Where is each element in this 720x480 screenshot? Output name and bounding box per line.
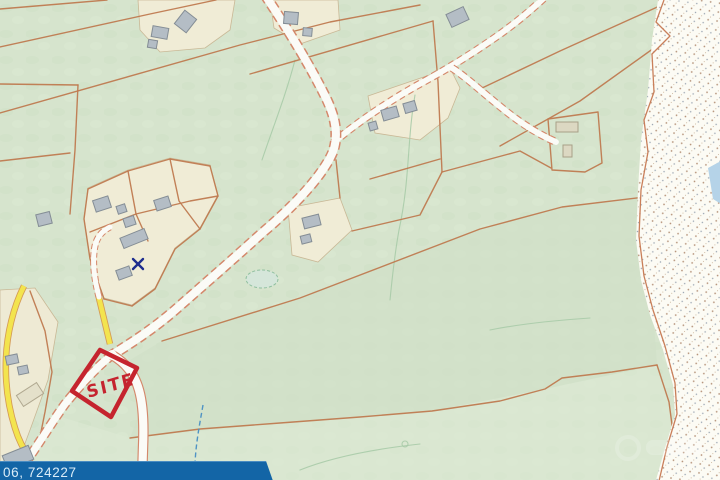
building [147, 39, 157, 48]
map-viewport: SITE 06, 724227 [0, 0, 720, 480]
building [151, 26, 169, 40]
building [17, 365, 28, 375]
map-canvas[interactable]: SITE 06, 724227 [0, 0, 720, 480]
coords-banner: 06, 724227 [0, 461, 273, 480]
building [368, 121, 378, 131]
pond [246, 270, 278, 288]
building [563, 145, 572, 157]
coords-banner-text: 06, 724227 [3, 465, 77, 480]
building [5, 354, 19, 365]
building [284, 11, 299, 24]
building [556, 122, 578, 132]
building [300, 234, 312, 244]
building [303, 28, 313, 37]
